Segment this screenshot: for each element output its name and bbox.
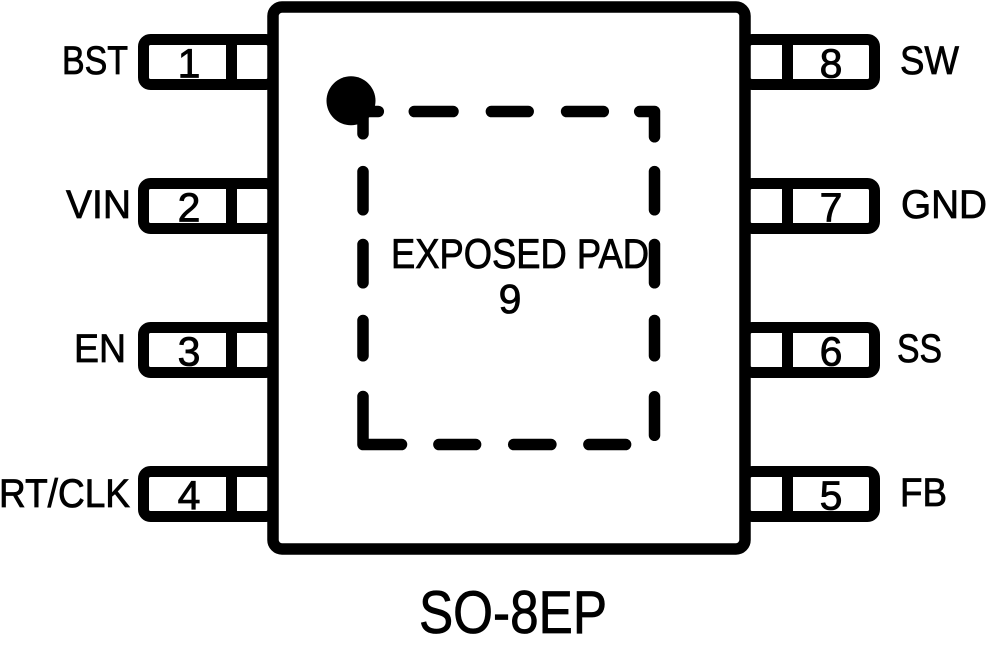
svg-text:3: 3 <box>178 329 201 375</box>
svg-text:4: 4 <box>178 473 201 519</box>
svg-text:FB: FB <box>900 471 947 515</box>
svg-text:2: 2 <box>178 185 201 231</box>
svg-text:SW: SW <box>900 39 959 83</box>
svg-text:9: 9 <box>499 276 522 322</box>
svg-text:5: 5 <box>820 473 843 519</box>
svg-text:6: 6 <box>820 329 843 375</box>
svg-text:EXPOSED PAD: EXPOSED PAD <box>391 230 649 277</box>
svg-text:7: 7 <box>820 185 843 231</box>
svg-text:SS: SS <box>897 327 942 371</box>
svg-text:GND: GND <box>901 183 986 227</box>
svg-text:VIN: VIN <box>66 183 131 227</box>
svg-text:8: 8 <box>820 41 843 87</box>
svg-text:SO-8EP: SO-8EP <box>419 579 607 646</box>
svg-text:1: 1 <box>178 41 201 87</box>
svg-text:RT/CLK: RT/CLK <box>0 472 130 516</box>
svg-text:BST: BST <box>62 39 128 83</box>
svg-text:EN: EN <box>74 327 126 371</box>
